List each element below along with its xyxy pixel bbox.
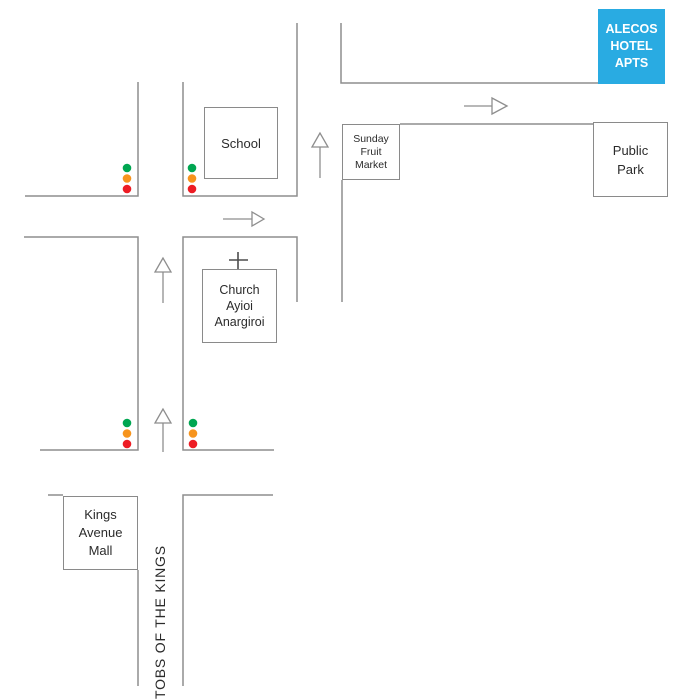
mall-box: Kings Avenue Mall bbox=[63, 496, 138, 570]
park-label-line: Public bbox=[613, 141, 648, 160]
market-label-line: Market bbox=[355, 159, 387, 172]
traffic-light-icon bbox=[123, 419, 132, 449]
up-arrow-icon bbox=[312, 133, 328, 178]
church-label-line: Ayioi bbox=[226, 298, 253, 314]
school-label: School bbox=[221, 135, 261, 152]
church-label-line: Church bbox=[219, 282, 259, 298]
road-topleft-block bbox=[25, 82, 138, 196]
fruit-market-box: Sunday Fruit Market bbox=[342, 124, 400, 180]
market-label-line: Fruit bbox=[361, 146, 382, 159]
road-top-avenue bbox=[341, 23, 598, 83]
church-box: Church Ayioi Anargiroi bbox=[202, 269, 277, 343]
up-arrow-icon bbox=[155, 409, 171, 452]
hotel-box: ALECOS HOTEL APTS bbox=[598, 9, 665, 84]
public-park-box: Public Park bbox=[593, 122, 668, 197]
market-label-line: Sunday bbox=[353, 133, 389, 146]
right-arrow-icon bbox=[464, 98, 507, 114]
street-name-label: TOBS OF THE KINGS bbox=[152, 545, 168, 699]
hotel-label-line: ALECOS bbox=[605, 21, 657, 38]
cross-icon bbox=[229, 252, 248, 269]
traffic-light-icon bbox=[188, 164, 197, 194]
road-network bbox=[0, 0, 692, 700]
mall-label-line: Mall bbox=[89, 542, 113, 560]
hotel-label-line: HOTEL bbox=[610, 38, 652, 55]
traffic-light-icon bbox=[189, 419, 198, 449]
park-label-line: Park bbox=[617, 160, 644, 179]
mall-label-line: Avenue bbox=[79, 524, 123, 542]
mall-label-line: Kings bbox=[84, 506, 117, 524]
church-label-line: Anargiroi bbox=[214, 314, 264, 330]
road-southeast-block bbox=[183, 495, 273, 686]
right-arrow-icon bbox=[223, 212, 264, 226]
up-arrow-icon bbox=[155, 258, 171, 303]
school-box: School bbox=[204, 107, 278, 179]
hotel-label-line: APTS bbox=[615, 55, 648, 72]
directions-map: ALECOS HOTEL APTS School Sunday Fruit Ma… bbox=[0, 0, 692, 700]
road-left-block bbox=[24, 237, 138, 450]
traffic-light-icon bbox=[123, 164, 132, 194]
